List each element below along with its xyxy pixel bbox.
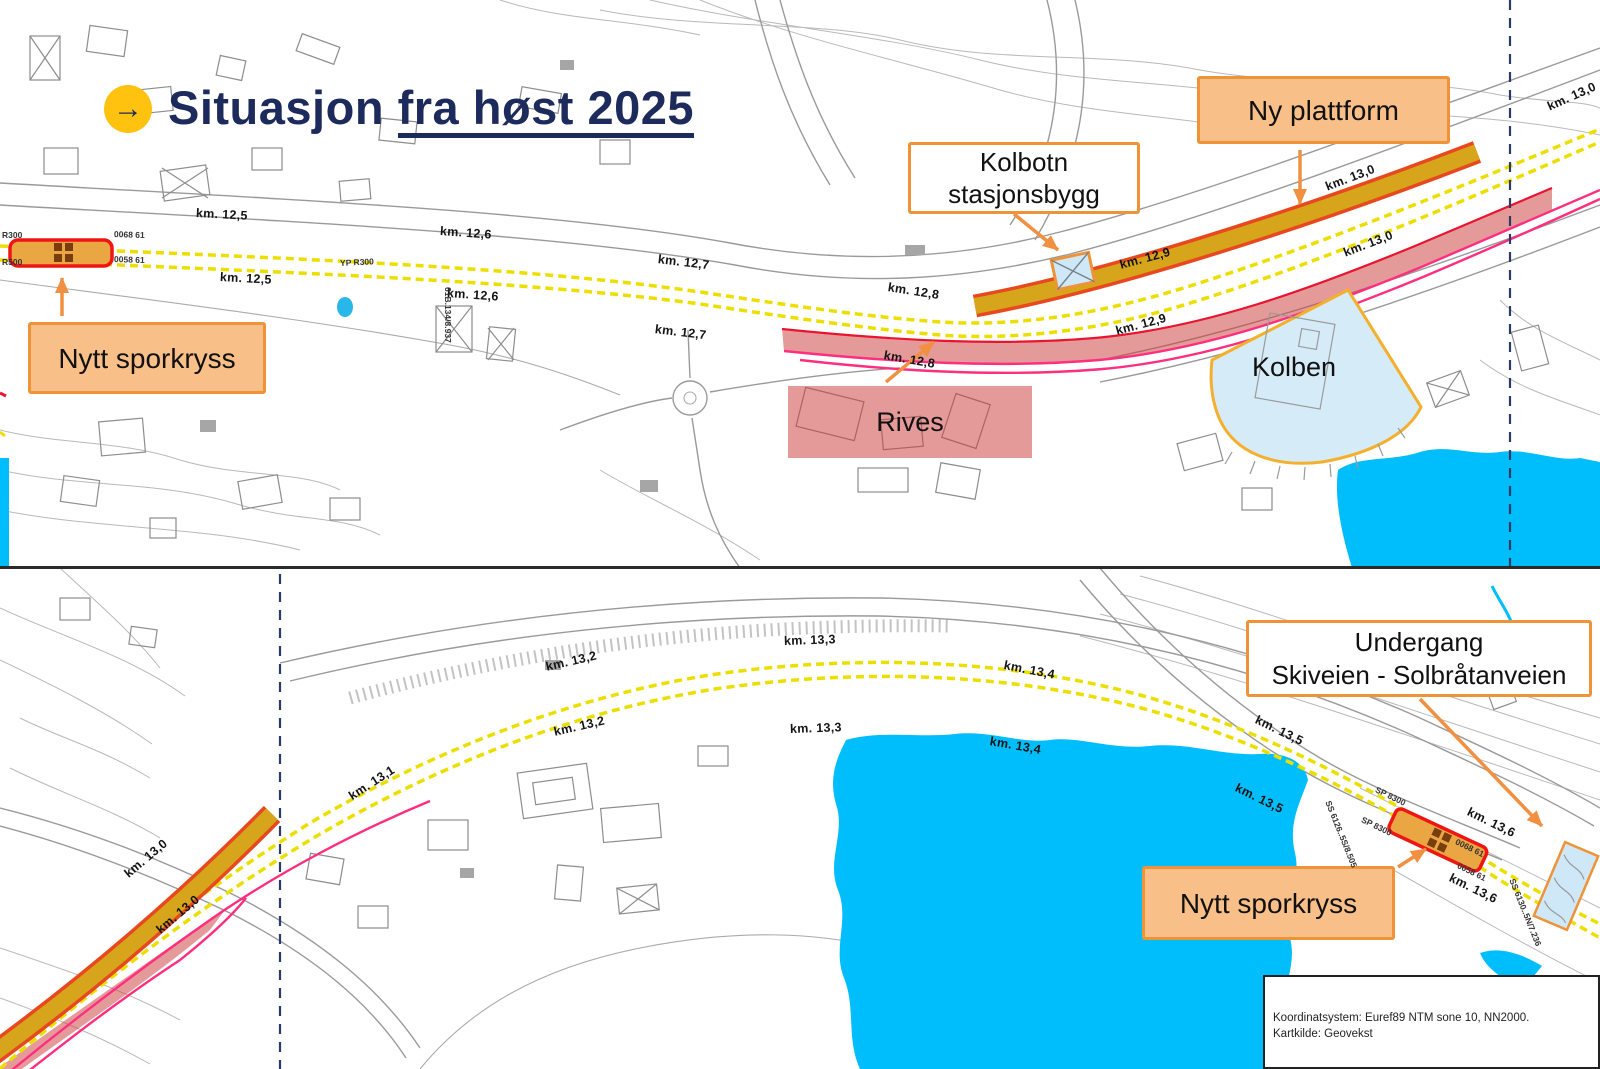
track-code-label: 0068 61: [114, 229, 145, 240]
callout-nytt-sporkryss-bottom-label: Nytt sporkryss: [1180, 886, 1357, 921]
callout-nytt-sporkryss-top: Nytt sporkryss: [28, 322, 266, 394]
arrow-right-icon: →: [104, 85, 152, 133]
rives-label: Rives: [876, 407, 944, 438]
track-code-label: 61B.134/8.937: [443, 287, 453, 343]
track-code-label: 0058 61: [114, 254, 145, 265]
km-label: km. 13,3: [790, 720, 842, 736]
callout-nytt-sporkryss-top-label: Nytt sporkryss: [58, 341, 235, 376]
track-code-label: R300: [2, 230, 22, 240]
slide: → Situasjon fra høst 2025 Ny plattform K…: [0, 0, 1600, 1069]
callout-ny-plattform: Ny plattform: [1197, 76, 1450, 144]
map-info-box: Koordinatsystem: Euref89 NTM sone 10, NN…: [1263, 975, 1600, 1069]
callout-kolbotn-line2: stasjonsbygg: [948, 178, 1100, 211]
callout-undergang: Undergang Skiveien - Solbråtanveien: [1246, 620, 1592, 697]
page-title-underlined: fra høst 2025: [398, 83, 694, 138]
station-building: [1051, 252, 1094, 289]
pond: [337, 297, 353, 317]
map-source-note: Kartkilde: Geovekst: [1273, 1027, 1598, 1043]
title-block: → Situasjon fra høst 2025: [104, 80, 694, 138]
demolition-overlay-track: [0, 801, 430, 1069]
track-code-label: R500: [2, 257, 22, 267]
km-label: km. 13,3: [784, 632, 836, 648]
callout-kolbotn-stasjonsbygg: Kolbotn stasjonsbygg: [908, 142, 1140, 214]
track-code-label: YP R300: [340, 256, 374, 268]
callout-undergang-line1: Undergang: [1355, 626, 1484, 659]
demolition-overlay-track: [782, 188, 1600, 373]
kolben-label: Kolben: [1252, 352, 1336, 383]
misc-marks: [0, 393, 6, 436]
km-label: km. 12,5: [220, 270, 272, 287]
page-title-prefix: Situasjon: [168, 81, 398, 134]
callout-ny-plattform-label: Ny plattform: [1248, 93, 1399, 128]
page-title: Situasjon fra høst 2025: [168, 80, 694, 138]
demolition-area-rives: Rives: [788, 386, 1032, 458]
panel-divider: [0, 566, 1600, 569]
underpass-structure: [1534, 842, 1598, 930]
callout-kolbotn-line1: Kolbotn: [980, 146, 1068, 179]
track-crossing-marker-top: [10, 240, 112, 266]
coordinate-system-note: Koordinatsystem: Euref89 NTM sone 10, NN…: [1273, 1011, 1598, 1027]
callout-nytt-sporkryss-bottom: Nytt sporkryss: [1142, 866, 1395, 940]
callout-undergang-line2: Skiveien - Solbråtanveien: [1272, 659, 1567, 692]
km-label: km. 12,5: [196, 206, 248, 223]
